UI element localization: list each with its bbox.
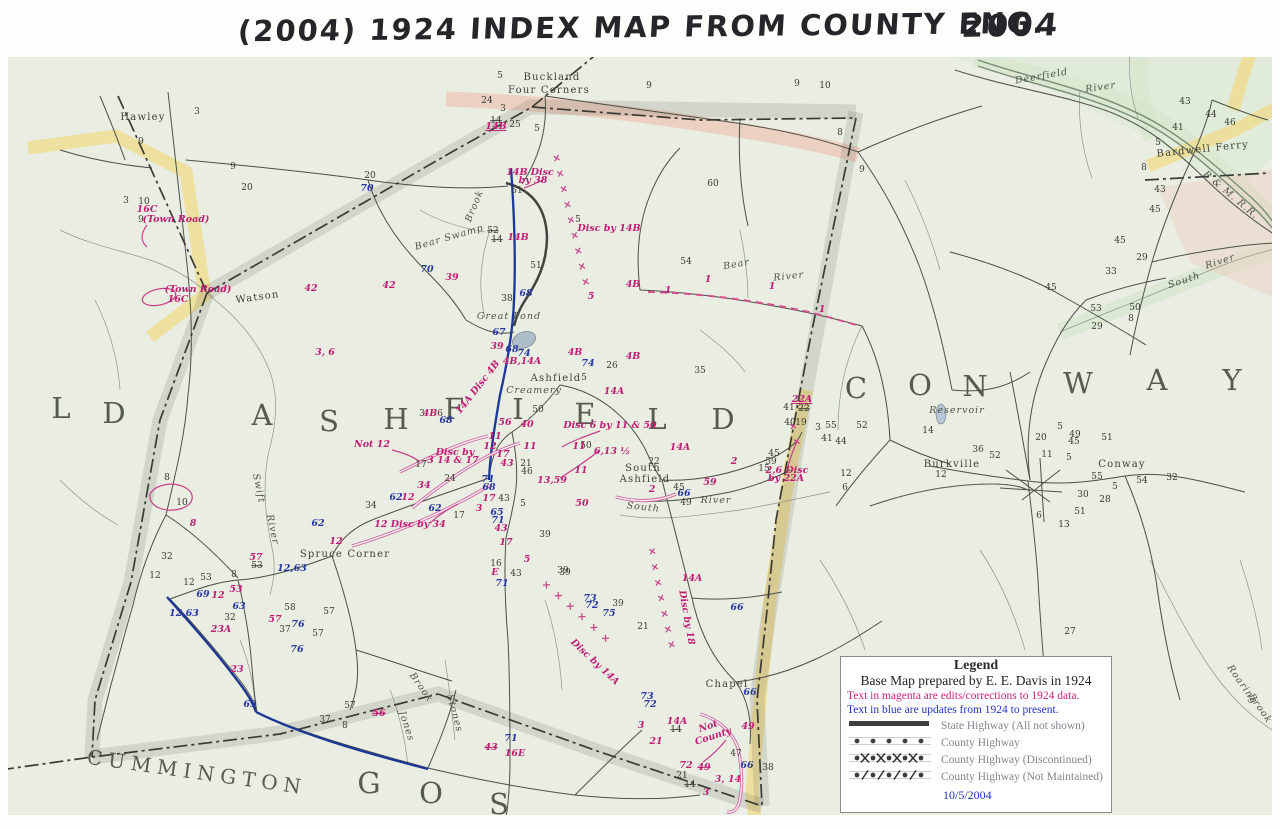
scanned-map-page: (2004) 1924 INDEX MAP FROM COUNTY ENG. 2… bbox=[0, 0, 1280, 829]
map-label: 5 bbox=[524, 554, 531, 565]
map-label: 56 bbox=[498, 417, 512, 428]
map-label: 42 bbox=[382, 280, 396, 291]
map-label: 2 bbox=[648, 484, 656, 495]
map-label: 24 bbox=[444, 474, 456, 484]
map-label: 44 bbox=[835, 437, 847, 447]
map-label: 20 bbox=[1035, 433, 1047, 443]
map-label: 50 bbox=[575, 498, 589, 509]
map-label: 69 bbox=[196, 589, 210, 600]
map-label: 68 bbox=[439, 415, 453, 426]
map-label: 20 bbox=[364, 171, 376, 181]
legend-row: State Highway (All not shown) bbox=[847, 717, 1105, 734]
title-band: (2004) 1924 INDEX MAP FROM COUNTY ENG. 2… bbox=[0, 0, 1280, 57]
map-label: 74 bbox=[581, 358, 594, 369]
map-label: Reservoir bbox=[928, 405, 985, 416]
map-label: 14B bbox=[507, 232, 528, 243]
map-label: O bbox=[419, 776, 445, 810]
map-label: 51 bbox=[1101, 433, 1112, 443]
map-label: Y bbox=[1221, 363, 1243, 397]
map-label: Ashfield bbox=[619, 474, 671, 485]
map-label: 22A bbox=[791, 394, 813, 405]
map-label: 1 bbox=[665, 285, 672, 296]
map-label: 49 bbox=[741, 721, 755, 732]
map-label: 10 bbox=[176, 498, 188, 508]
legend-item-label: State Highway (All not shown) bbox=[941, 720, 1085, 732]
map-label: 23 bbox=[229, 664, 244, 675]
map-label: 3 bbox=[194, 107, 200, 117]
map-label: 63 bbox=[232, 601, 246, 612]
map-label: 45 bbox=[1068, 437, 1080, 447]
map-label: 43 bbox=[1154, 185, 1166, 195]
handwritten-title: (2004) 1924 INDEX MAP FROM COUNTY ENG. bbox=[237, 6, 1046, 48]
map-label: 5 bbox=[1112, 482, 1118, 492]
map-label: 11 bbox=[1041, 450, 1052, 460]
map-label: 43 bbox=[498, 494, 510, 504]
map-label: 9 bbox=[138, 137, 144, 147]
map-label: 4B bbox=[423, 408, 438, 419]
map-label: 40 bbox=[520, 419, 534, 430]
map-label: Conway bbox=[1098, 459, 1145, 470]
legend-date: 10/5/2004 bbox=[943, 788, 1105, 803]
scan-margin-bottom bbox=[0, 815, 1280, 829]
map-label: 49 bbox=[680, 498, 692, 508]
map-label: 3 14 & 17 bbox=[427, 455, 479, 466]
map-label: 8 bbox=[164, 473, 170, 483]
state-highway-symbol bbox=[847, 717, 941, 735]
map-label: 22 bbox=[648, 457, 659, 467]
map-label: 14 bbox=[491, 235, 503, 245]
map-label: Disc by 14B bbox=[576, 223, 640, 234]
map-label: 76 bbox=[290, 644, 304, 655]
map-label: 12 bbox=[840, 469, 851, 479]
map-label: 62 bbox=[389, 492, 403, 503]
map-label: 51 bbox=[511, 186, 522, 196]
map-label: Disc 6 by 11 & 50 bbox=[562, 420, 657, 431]
map-label: 14A bbox=[604, 386, 625, 397]
map-label: A bbox=[251, 398, 275, 432]
map-label: Ashfield bbox=[530, 373, 582, 384]
map-label: 3 bbox=[703, 787, 710, 798]
map-label: 13,59 bbox=[537, 475, 567, 486]
map-label: 71 bbox=[495, 578, 508, 589]
map-label: 71 bbox=[491, 515, 504, 526]
map-label: 53 bbox=[229, 584, 243, 595]
map-label: 33 bbox=[1105, 267, 1117, 277]
map-label: 34 bbox=[365, 501, 377, 511]
map-label: 41 bbox=[821, 434, 832, 444]
map-label: 39 bbox=[445, 272, 459, 283]
map-label: Spruce Corner bbox=[300, 549, 390, 560]
legend-magenta-note: Text in magenta are edits/corrections to… bbox=[847, 689, 1105, 703]
map-label: 14 bbox=[684, 780, 696, 790]
map-label: 1 bbox=[769, 281, 776, 292]
map-label: 25 bbox=[509, 120, 521, 130]
handwritten-year: 2004 bbox=[960, 7, 1061, 45]
map-label: 9 bbox=[859, 165, 865, 175]
map-label: D bbox=[102, 396, 127, 430]
map-label: 41 bbox=[1172, 123, 1183, 133]
map-label: A bbox=[1146, 363, 1170, 397]
map-label: 74 bbox=[517, 348, 530, 359]
scan-margin-right bbox=[1272, 57, 1280, 829]
legend-basemap-note: Base Map prepared by E. E. Davis in 1924 bbox=[847, 673, 1105, 689]
map-label: Great Pond bbox=[477, 311, 541, 322]
map-label: 54 bbox=[680, 257, 692, 267]
map-label: 14 bbox=[922, 426, 934, 436]
map-label: 76 bbox=[291, 619, 305, 630]
map-label: 57 bbox=[344, 701, 356, 711]
map-label: 22 bbox=[798, 404, 809, 414]
map-label: 34 bbox=[417, 480, 430, 491]
county-highway-not-maintained-symbol bbox=[847, 768, 941, 786]
legend-heading: Legend bbox=[847, 658, 1105, 673]
map-label: 5 bbox=[520, 499, 526, 509]
map-label: 5 bbox=[581, 373, 587, 383]
map-label: 50 bbox=[1129, 303, 1141, 313]
map-label: 20 bbox=[241, 183, 253, 193]
legend-item-label: County Highway bbox=[941, 737, 1020, 749]
map-label: 12 bbox=[149, 571, 160, 581]
map-label: 9 bbox=[230, 162, 236, 172]
legend-item-label: County Highway (Discontinued) bbox=[941, 754, 1092, 766]
map-label: 72 bbox=[643, 699, 657, 710]
map-label: 37 bbox=[319, 715, 331, 725]
map-label: 3, 6 bbox=[315, 347, 335, 358]
legend-row: County Highway bbox=[847, 734, 1105, 751]
map-label: 3 bbox=[638, 720, 645, 731]
map-label: 62 bbox=[428, 503, 442, 514]
map-label: 13 bbox=[1058, 520, 1070, 530]
map-label: 12 bbox=[329, 536, 343, 547]
map-label: 29 bbox=[1136, 253, 1148, 263]
map-label: 32 bbox=[1166, 473, 1177, 483]
map-label: 21 bbox=[648, 736, 662, 747]
map-label: 1 bbox=[705, 274, 712, 285]
map-label: 3 bbox=[123, 196, 129, 206]
map-label: W bbox=[1063, 366, 1095, 400]
county-highway-symbol bbox=[847, 734, 941, 752]
map-label: 57 bbox=[268, 614, 282, 625]
map-label: River bbox=[700, 495, 732, 506]
map-label: Four Corners bbox=[508, 85, 590, 96]
map-label: 27 bbox=[1064, 627, 1076, 637]
map-label: 14B bbox=[485, 121, 506, 132]
map-label: Buckland bbox=[523, 72, 580, 83]
map-label: 68 bbox=[482, 482, 496, 493]
map-label: 12 bbox=[401, 492, 415, 503]
map-label: 8 bbox=[1141, 163, 1147, 173]
map-label: H bbox=[383, 402, 410, 436]
map-label: 26 bbox=[606, 361, 618, 371]
map-label: 51 bbox=[1074, 507, 1085, 517]
map-label: 32 bbox=[161, 552, 172, 562]
map-label: 52 bbox=[856, 421, 867, 431]
map-label: (Town Road) bbox=[143, 214, 210, 225]
map-label: 66 bbox=[730, 602, 744, 613]
map-label: 51 bbox=[530, 261, 541, 271]
map-label: 12 bbox=[935, 470, 946, 480]
map-label: 54 bbox=[1136, 476, 1148, 486]
map-label: 39 bbox=[490, 341, 504, 352]
map-label: 12,63 bbox=[277, 563, 307, 574]
map-label: 11 bbox=[572, 441, 585, 452]
map-label: 12,63 bbox=[169, 608, 199, 619]
map-label: 32 bbox=[224, 613, 235, 623]
map-label: 66 bbox=[740, 760, 754, 771]
map-label: 36 bbox=[972, 445, 984, 455]
map-label: N bbox=[962, 369, 989, 403]
map-label: 3 bbox=[500, 104, 506, 114]
map-label: Not 12 bbox=[353, 439, 390, 450]
map-label: 4B bbox=[626, 279, 641, 290]
map-label: 45 bbox=[1114, 236, 1126, 246]
map-label: 57 bbox=[312, 629, 324, 639]
map-label: by 38 bbox=[519, 175, 548, 186]
map-label: 38 bbox=[762, 763, 774, 773]
map-label: 21 bbox=[637, 622, 648, 632]
map-label: 9 bbox=[646, 81, 652, 91]
map-label: 72 bbox=[585, 600, 599, 611]
map-label: 59 bbox=[703, 477, 717, 488]
map-label: 39 bbox=[559, 568, 571, 578]
map-label: 6,13 ½ bbox=[594, 446, 630, 457]
map-label: 28 bbox=[1099, 495, 1111, 505]
map-label: 57 bbox=[249, 552, 263, 563]
map-label: 46 bbox=[1224, 118, 1236, 128]
legend-box: Legend Base Map prepared by E. E. Davis … bbox=[840, 656, 1112, 813]
map-label: 17 bbox=[499, 537, 513, 548]
map-label: 43 bbox=[484, 742, 498, 753]
map-label: 14A bbox=[682, 573, 703, 584]
map-label: 68 bbox=[519, 288, 533, 299]
county-highway-discontinued-symbol bbox=[847, 751, 941, 769]
map-label: 46 bbox=[521, 467, 533, 477]
map-label: 24 bbox=[481, 96, 493, 106]
map-label: 5 bbox=[1066, 453, 1072, 463]
map-label: 6 bbox=[842, 483, 848, 493]
map-label: O bbox=[908, 368, 934, 402]
map-label: Chapel bbox=[706, 679, 749, 690]
map-label: 38 bbox=[501, 294, 513, 304]
map-label: 8 bbox=[190, 518, 197, 529]
map-label: 11 bbox=[523, 441, 536, 452]
map-label: 12 bbox=[211, 590, 225, 601]
map-label: 10 bbox=[819, 81, 831, 91]
map-label: 8 bbox=[1128, 314, 1134, 324]
map-label: 5 bbox=[588, 291, 595, 302]
legend-item-label: County Highway (Not Maintained) bbox=[941, 771, 1103, 783]
map-label: 9 bbox=[794, 79, 800, 89]
map-label: C bbox=[845, 371, 869, 405]
map-label: 14A bbox=[667, 716, 688, 727]
map-label: 12 Disc by 34 bbox=[374, 519, 446, 530]
map-label: 43 bbox=[500, 458, 514, 469]
map-label: 62 bbox=[311, 518, 325, 529]
map-label: 57 bbox=[323, 607, 335, 617]
map-label: 3 bbox=[476, 503, 483, 514]
map-label: 49 bbox=[697, 762, 711, 773]
map-label: 17 bbox=[415, 460, 427, 470]
map-label: 8 bbox=[231, 570, 237, 580]
map-label: 5 bbox=[1155, 138, 1161, 148]
map-label: 45 bbox=[1045, 283, 1057, 293]
map-label: 3, 14 bbox=[715, 774, 741, 785]
map-label: 70 bbox=[360, 183, 374, 194]
map-label: S bbox=[319, 404, 341, 438]
map-label: 58 bbox=[284, 603, 296, 613]
map-label: 12 bbox=[183, 578, 194, 588]
legend-blue-note: Text in blue are updates from 1924 to pr… bbox=[847, 703, 1105, 717]
scan-margin-left bbox=[0, 57, 8, 829]
map-label: 23A bbox=[210, 624, 232, 635]
map-label: 44 bbox=[1205, 110, 1217, 120]
map-label: 4B bbox=[626, 351, 641, 362]
map-label: 43 bbox=[1179, 97, 1191, 107]
map-label: 43 bbox=[510, 569, 522, 579]
map-label: 42 bbox=[304, 283, 318, 294]
map-label: 4B bbox=[568, 347, 583, 358]
map-label: 69 bbox=[243, 699, 257, 710]
map-label: E bbox=[490, 567, 499, 578]
map-label: 17 bbox=[453, 511, 465, 521]
map-label: 55 bbox=[825, 421, 837, 431]
map-label: Hawley bbox=[120, 112, 165, 123]
map-label: 50 bbox=[532, 405, 544, 415]
map-label: 1 bbox=[819, 304, 826, 315]
map-label: 56 bbox=[372, 708, 386, 719]
map-label: 71 bbox=[504, 733, 517, 744]
map-label: 19 bbox=[795, 418, 807, 428]
map-label: 8 bbox=[837, 128, 843, 138]
map-label: Burkville bbox=[924, 459, 981, 470]
map-label: 53 bbox=[200, 573, 212, 583]
map-label: 72 bbox=[679, 760, 693, 771]
map-label: 52 bbox=[989, 451, 1000, 461]
map-label: 5 bbox=[1057, 422, 1063, 432]
map-label: 66 bbox=[677, 488, 691, 499]
map-label: 16E bbox=[505, 748, 526, 759]
map-label: 14A bbox=[670, 442, 691, 453]
map-label: 47 bbox=[730, 749, 742, 759]
map-label: 70 bbox=[420, 264, 434, 275]
map-label: 75 bbox=[602, 608, 616, 619]
map-label: 11 bbox=[574, 465, 587, 476]
map-label: 3 bbox=[815, 423, 821, 433]
map-label: 6 bbox=[1036, 511, 1042, 521]
map-label: 5 bbox=[497, 71, 503, 81]
map-label: 40 bbox=[784, 418, 796, 428]
map-label: D bbox=[711, 402, 736, 436]
map-label: 66 bbox=[743, 687, 757, 698]
legend-row: County Highway (Discontinued) bbox=[847, 751, 1105, 768]
map-label: 39 bbox=[539, 530, 551, 540]
map-label: 17 bbox=[482, 493, 496, 504]
map-label: G bbox=[357, 766, 382, 800]
map-label: 2 bbox=[730, 456, 738, 467]
map-label: 8 bbox=[342, 721, 348, 731]
map-label: 53 bbox=[1090, 304, 1102, 314]
map-label: 60 bbox=[707, 179, 719, 189]
map-label: by 22A bbox=[768, 473, 804, 484]
map-label: 45 bbox=[1149, 205, 1161, 215]
legend-row: County Highway (Not Maintained) bbox=[847, 768, 1105, 785]
map-label: 37 bbox=[279, 625, 291, 635]
map-label: L bbox=[51, 391, 72, 425]
map-label: 12 bbox=[483, 441, 497, 452]
map-label: 29 bbox=[1091, 322, 1103, 332]
map-label: 35 bbox=[694, 366, 706, 376]
map-label: 67 bbox=[492, 327, 506, 338]
map-label: 55 bbox=[1091, 472, 1103, 482]
map-label: 30 bbox=[1077, 490, 1089, 500]
map-label: 16C bbox=[168, 294, 189, 305]
map-label: 5 bbox=[534, 124, 540, 134]
